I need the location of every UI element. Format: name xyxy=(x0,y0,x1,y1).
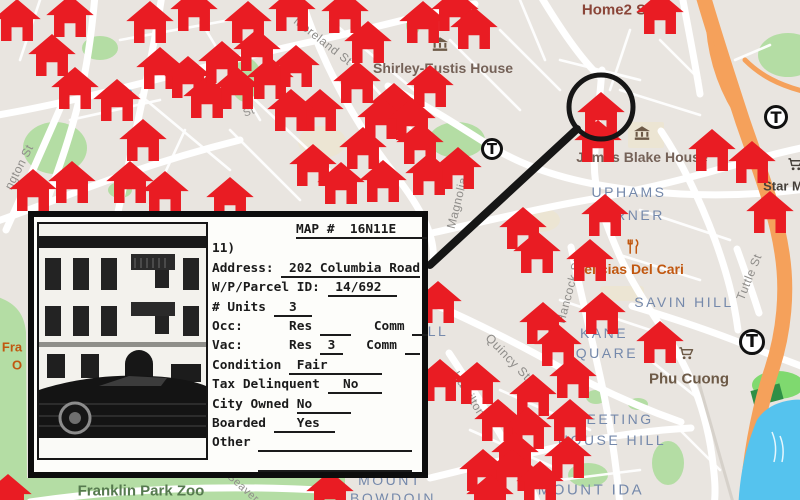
record-line: Vac: Res 3 Comm xyxy=(212,336,427,355)
field-label: Address: xyxy=(212,261,281,276)
field-value: Fair xyxy=(289,358,381,375)
field-value: 3 xyxy=(320,338,343,355)
record-line: Other xyxy=(212,433,427,452)
building-photo xyxy=(37,222,208,460)
field-value: Yes xyxy=(274,416,336,433)
field-label: City Owned xyxy=(212,397,297,412)
field-label: Boarded xyxy=(212,416,274,431)
field-value: 202 Columbia Road xyxy=(281,261,420,278)
building-photo-drawing xyxy=(39,224,206,458)
field-value xyxy=(412,319,427,336)
record-line: Tax Delinquent No xyxy=(212,375,427,394)
field-label: Comm xyxy=(351,319,413,334)
field-label: 11) xyxy=(212,241,235,256)
property-record-card: MAP # 16N11E 11)Address: 202 Columbia Ro… xyxy=(28,211,428,478)
field-value xyxy=(258,455,412,472)
record-line: # Units 3 xyxy=(212,298,427,317)
water-layer xyxy=(738,400,800,500)
field-label: Vac: Res xyxy=(212,338,320,353)
field-label: Condition xyxy=(212,358,289,373)
field-value: MAP # 16N11E xyxy=(296,222,427,239)
field-label: Tax Delinquent xyxy=(212,377,328,392)
field-label: Other xyxy=(212,435,258,450)
field-value: 3 xyxy=(274,300,313,317)
field-value xyxy=(320,319,351,336)
field-label: Comm xyxy=(343,338,405,353)
field-value: No xyxy=(328,377,382,394)
field-label xyxy=(212,455,258,470)
field-value: No xyxy=(297,397,351,414)
record-line: 11) xyxy=(212,239,427,258)
record-line: Condition Fair xyxy=(212,356,427,375)
record-line: MAP # 16N11E xyxy=(212,220,427,239)
field-value xyxy=(405,338,420,355)
record-line: Address: 202 Columbia Road xyxy=(212,259,427,278)
record-line xyxy=(212,453,427,472)
field-label: Occ: Res xyxy=(212,319,320,334)
field-value: 14/692 xyxy=(328,280,397,297)
field-value xyxy=(258,435,412,452)
annotated-map-figure[interactable]: Home2 SShirley-Eustis HouseJames Blake H… xyxy=(0,0,800,500)
record-line: Occ: Res Comm xyxy=(212,317,427,336)
field-label: W/P/Parcel ID: xyxy=(212,280,328,295)
record-line: Boarded Yes xyxy=(212,414,427,433)
record-line: City Owned No xyxy=(212,395,427,414)
record-fields: MAP # 16N11E 11)Address: 202 Columbia Ro… xyxy=(212,220,427,472)
field-label: # Units xyxy=(212,300,274,315)
record-line: W/P/Parcel ID: 14/692 xyxy=(212,278,427,297)
